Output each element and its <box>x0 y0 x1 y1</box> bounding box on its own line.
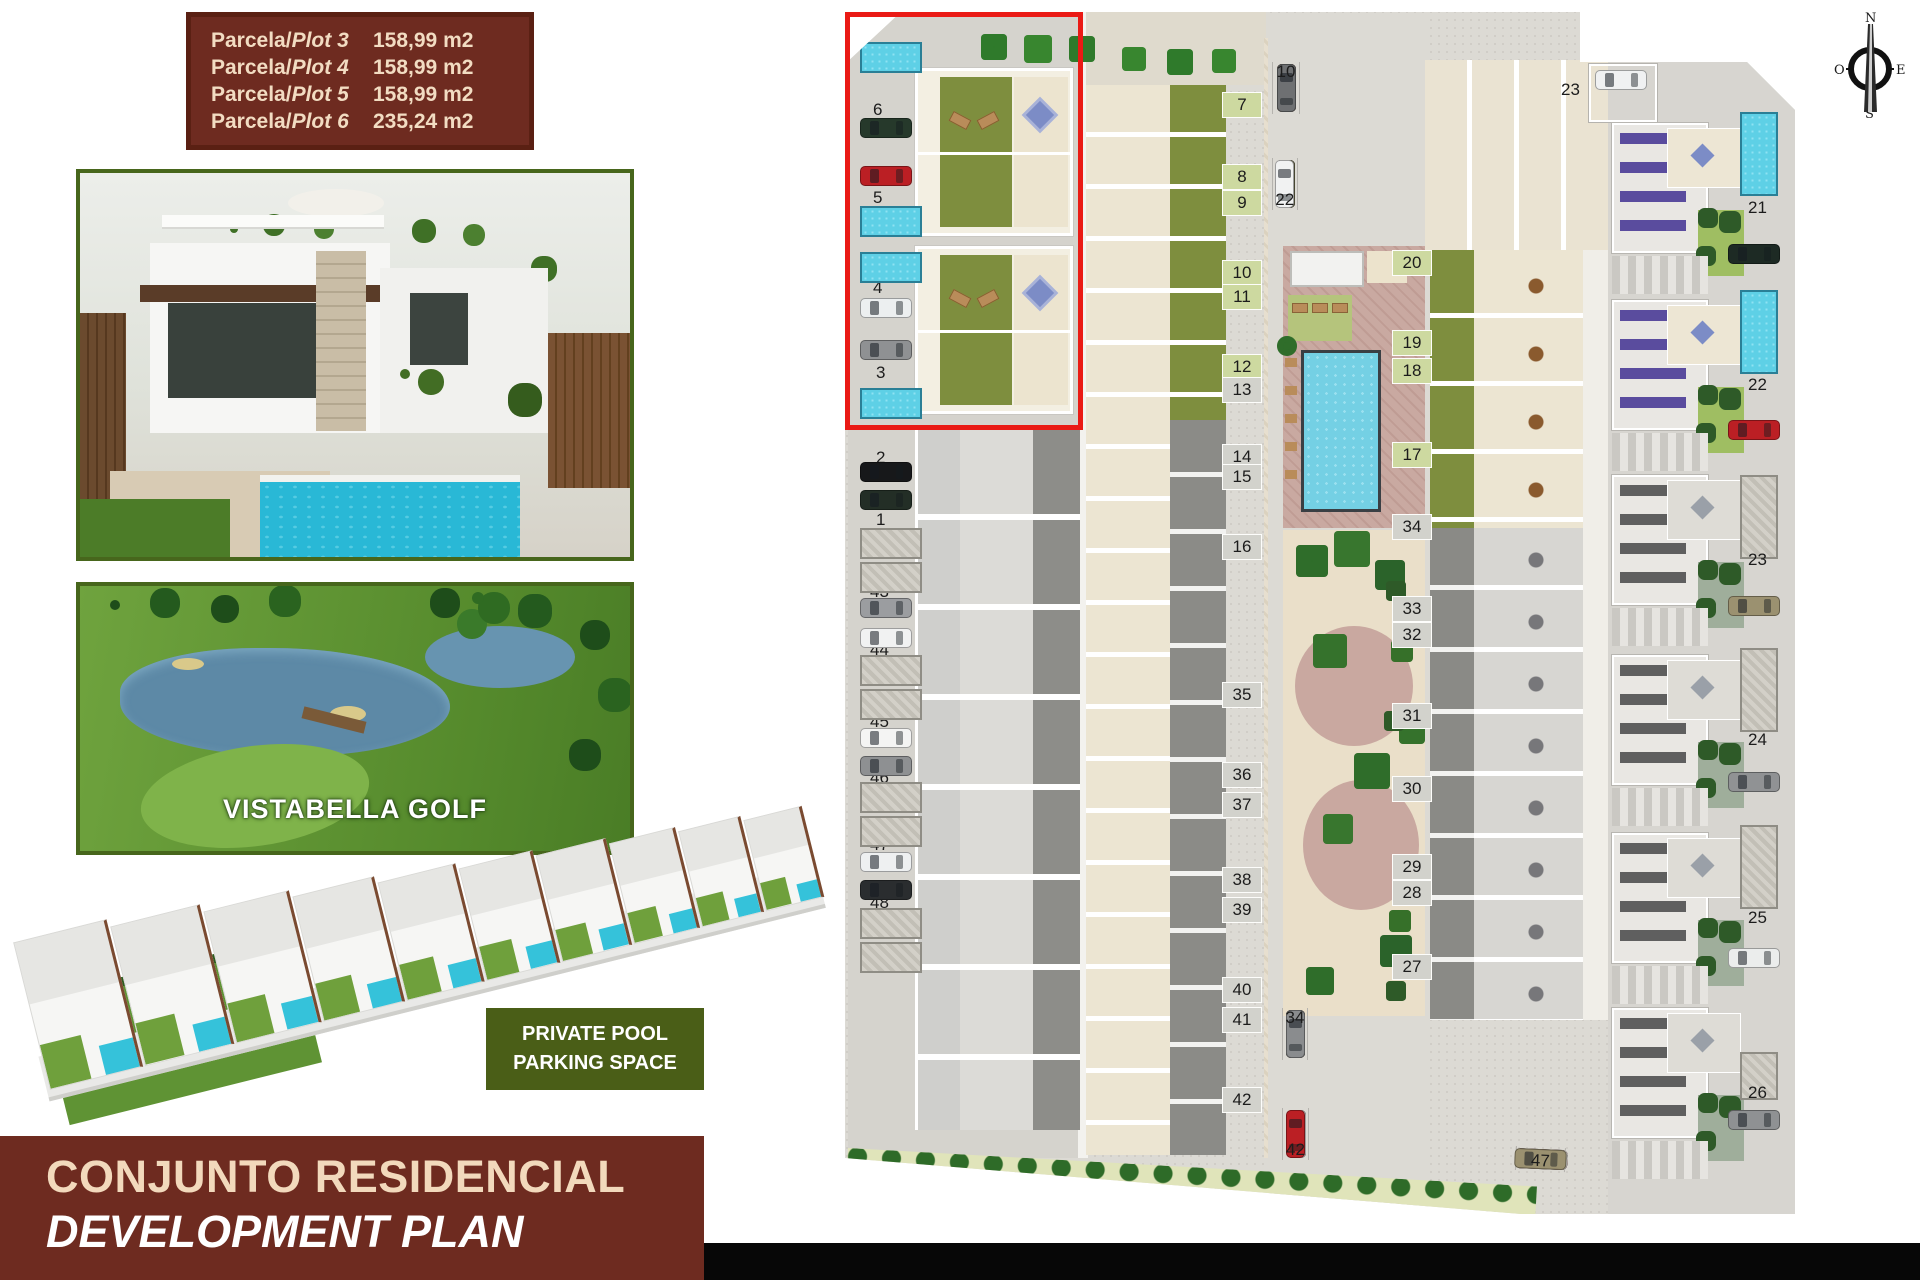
parking-spot: 22 <box>1272 158 1298 210</box>
unit-number: 11 <box>1222 284 1262 310</box>
plot-name: Parcela/Plot 6 <box>211 108 349 135</box>
villa-terrace <box>1667 660 1741 720</box>
plot-size-row: Parcela/Plot 3 158,99 m2 <box>211 27 513 54</box>
car-icon <box>1728 244 1780 264</box>
plot-number: 1 <box>876 510 885 530</box>
sun-lounger-icon <box>1292 303 1308 313</box>
parking-number: 34 <box>1286 1008 1305 1028</box>
parking-number: 47 <box>1530 1151 1550 1172</box>
footer-title-band: CONJUNTO RESIDENCIAL DEVELOPMENT PLAN <box>0 1136 704 1280</box>
unit-number: 28 <box>1392 880 1432 906</box>
parking-spot: 42 <box>1282 1108 1309 1160</box>
highlight-rectangle <box>845 12 1083 430</box>
unit-number: 32 <box>1392 622 1432 648</box>
private-pool <box>260 475 520 561</box>
pool <box>1740 290 1778 374</box>
unit-number: 15 <box>1222 464 1262 490</box>
plot-area: 158,99 m2 <box>373 81 513 108</box>
villa-driveway <box>1612 608 1708 646</box>
communal-pool-area <box>1283 246 1425 528</box>
pool <box>1740 825 1778 909</box>
plot-size-row: Parcela/Plot 6 235,24 m2 <box>211 108 513 135</box>
communal-pool <box>1301 350 1381 512</box>
car-icon <box>1728 948 1780 968</box>
villa-number: 22 <box>1748 375 1767 395</box>
title-english: DEVELOPMENT PLAN <box>46 1204 704 1260</box>
plot-name: Parcela/Plot 5 <box>211 81 349 108</box>
plot-name: Parcela/Plot 4 <box>211 54 349 81</box>
parking-spot: 10 <box>1272 62 1300 114</box>
pool <box>860 782 922 813</box>
title-spanish: CONJUNTO RESIDENCIAL <box>46 1150 704 1204</box>
villa-number: 23 <box>1748 550 1767 570</box>
villa-terrace <box>1667 1013 1741 1073</box>
unit-number: 18 <box>1392 358 1432 384</box>
villa-number: 24 <box>1748 730 1767 750</box>
villa-terrace <box>1667 305 1741 365</box>
mid-units-gardens-gray <box>1170 420 1226 1155</box>
center-right-gardens-green <box>1430 250 1474 528</box>
car-icon <box>1728 420 1780 440</box>
unit-separators <box>918 430 1080 1130</box>
sun-lounger-icon <box>1332 303 1348 313</box>
unit-number: 38 <box>1222 867 1262 893</box>
unit-number: 7 <box>1222 92 1262 118</box>
villa-terrace <box>1667 838 1741 898</box>
unit-number: 33 <box>1392 596 1432 622</box>
unit-number: 16 <box>1222 534 1262 560</box>
left-gray-buildings <box>915 430 1077 1130</box>
villa-terrace <box>1667 480 1741 540</box>
car-icon <box>860 880 912 900</box>
villa-number: 26 <box>1748 1083 1767 1103</box>
car-icon <box>860 628 912 648</box>
unit-number: 30 <box>1392 776 1432 802</box>
unit-number: 19 <box>1392 330 1432 356</box>
car-icon <box>860 462 912 482</box>
parking-number: 23 <box>1561 80 1580 100</box>
center-right-east-wing <box>1583 250 1611 1020</box>
plot-name: Parcela/Plot 3 <box>211 27 349 54</box>
pool <box>1740 475 1778 559</box>
garden-trees-icon <box>1311 560 1313 562</box>
unit-number: 9 <box>1222 190 1262 216</box>
boundary-hedge <box>846 1148 1537 1228</box>
bottom-black-strip <box>704 1243 1920 1280</box>
umbrella-icon <box>288 189 384 217</box>
compass-east: E <box>1896 63 1906 78</box>
compass-north: N <box>1865 11 1876 26</box>
unit-number: 42 <box>1222 1087 1262 1113</box>
car-icon <box>860 728 912 748</box>
window <box>410 293 468 365</box>
pool <box>1740 112 1778 196</box>
villa-driveway <box>1612 256 1708 294</box>
plot-size-table: Parcela/Plot 3 158,99 m2 Parcela/Plot 4 … <box>186 12 534 150</box>
pool-house <box>1290 251 1364 287</box>
car-icon <box>860 852 912 872</box>
top-walkway <box>1086 12 1266 85</box>
villa-driveway <box>1612 433 1708 471</box>
unit-number: 13 <box>1222 377 1262 403</box>
villa-render-photo <box>76 169 634 561</box>
parking-number: 22 <box>1275 190 1294 210</box>
pool <box>860 908 922 939</box>
lake-secondary <box>425 626 575 688</box>
unit-number: 37 <box>1222 792 1262 818</box>
brochure-page: Parcela/Plot 3 158,99 m2 Parcela/Plot 4 … <box>0 0 1920 1280</box>
parking-number: 10 <box>1277 62 1296 82</box>
tree-icon <box>1283 342 1291 350</box>
pool <box>860 689 922 720</box>
villa-driveway <box>1612 788 1708 826</box>
pool <box>860 816 922 847</box>
stone-pillar <box>316 251 366 431</box>
unit-number: 17 <box>1392 442 1432 468</box>
car-icon <box>860 598 912 618</box>
car-icon <box>1595 70 1647 90</box>
feature-box: PRIVATE POOL PARKING SPACE <box>486 1008 704 1090</box>
center-right-top-units <box>1425 60 1611 258</box>
unit-number: 34 <box>1392 514 1432 540</box>
unit-number: 27 <box>1392 954 1432 980</box>
pool <box>1740 648 1778 732</box>
unit-number: 31 <box>1392 703 1432 729</box>
villa-number: 21 <box>1748 198 1767 218</box>
compass-rose: N S E O <box>1832 8 1908 120</box>
unit-number: 29 <box>1392 854 1432 880</box>
pool <box>860 655 922 686</box>
plot-area: 158,99 m2 <box>373 54 513 81</box>
feature-line-1: PRIVATE POOL <box>522 1020 668 1049</box>
unit-number: 35 <box>1222 682 1262 708</box>
mid-units-terraces <box>1086 85 1170 1155</box>
plot-area: 158,99 m2 <box>373 27 513 54</box>
unit-number: 36 <box>1222 762 1262 788</box>
unit-number: 20 <box>1392 250 1432 276</box>
unit-number: 10 <box>1222 260 1262 286</box>
car-icon <box>1728 596 1780 616</box>
plot-size-row: Parcela/Plot 4 158,99 m2 <box>211 54 513 81</box>
glass-doors <box>168 303 318 398</box>
row-houses-render <box>20 760 860 1160</box>
lawn <box>80 499 230 557</box>
unit-number: 40 <box>1222 977 1262 1003</box>
pool <box>860 562 922 593</box>
villa-number: 25 <box>1748 908 1767 928</box>
roof-railing <box>162 215 384 229</box>
car-icon <box>1728 772 1780 792</box>
car-icon <box>860 490 912 510</box>
parking-spot: 47 <box>1515 1146 1566 1172</box>
villa-driveway <box>1612 1141 1708 1179</box>
villa-driveway <box>1612 966 1708 1004</box>
parking-spot: 34 <box>1282 1008 1308 1060</box>
plot-size-row: Parcela/Plot 5 158,99 m2 <box>211 81 513 108</box>
wood-fence-right <box>548 333 630 488</box>
car-icon <box>860 756 912 776</box>
parking-number: 42 <box>1286 1140 1305 1160</box>
palm-tree-icon <box>472 592 484 604</box>
lake <box>120 648 450 756</box>
center-right-gardens-gray <box>1430 528 1474 1020</box>
sun-lounger-icon <box>1312 303 1328 313</box>
plot-area: 235,24 m2 <box>373 108 513 135</box>
mid-units-gardens-green <box>1170 85 1226 420</box>
villa-terrace <box>1667 128 1741 188</box>
unit-number: 8 <box>1222 164 1262 190</box>
pool <box>860 942 922 973</box>
garden-plants-icon <box>400 369 410 379</box>
compass-west: O <box>1834 63 1845 78</box>
car-icon <box>1728 1110 1780 1130</box>
hedge-trees-icon <box>1395 590 1397 592</box>
unit-number: 41 <box>1222 1007 1262 1033</box>
sun-lounger-column-icon <box>1285 358 1297 367</box>
tree-cluster-icon <box>110 600 120 610</box>
pool <box>860 528 922 559</box>
unit-number: 39 <box>1222 897 1262 923</box>
feature-line-2: PARKING SPACE <box>513 1049 677 1078</box>
lounger-pad <box>1288 295 1352 341</box>
